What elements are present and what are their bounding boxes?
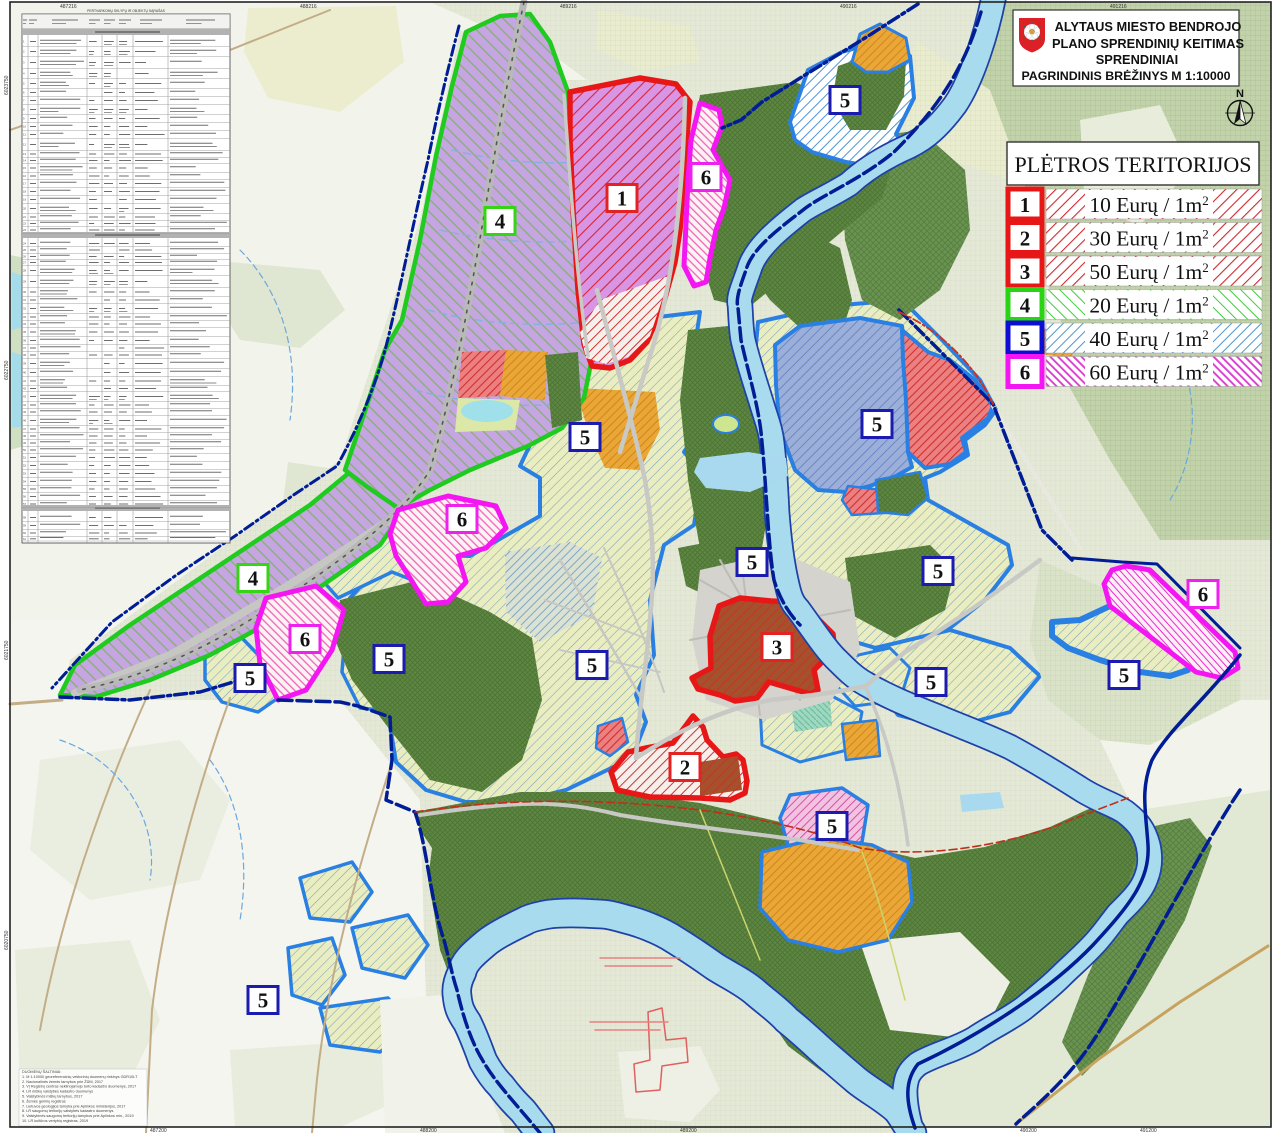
svg-text:46: 46 xyxy=(23,419,27,423)
svg-text:5: 5 xyxy=(1119,664,1130,688)
svg-text:50 Eurų / 1m2: 50 Eurų / 1m2 xyxy=(1089,260,1208,284)
svg-text:38: 38 xyxy=(23,353,27,357)
svg-text:57: 57 xyxy=(23,502,27,506)
svg-text:49: 49 xyxy=(23,441,27,445)
svg-text:5: 5 xyxy=(840,89,851,113)
svg-text:54: 54 xyxy=(23,480,27,484)
svg-text:47: 47 xyxy=(23,427,27,431)
svg-text:20: 20 xyxy=(23,207,27,211)
svg-text:17: 17 xyxy=(23,182,27,186)
svg-text:4: 4 xyxy=(1020,294,1031,318)
svg-text:23: 23 xyxy=(23,228,27,232)
svg-text:4. LR miškų valstybės kadastro: 4. LR miškų valstybės kadastro duomenys xyxy=(22,1090,93,1094)
svg-text:PAGRINDINIS BRĖŽINYS M 1:1000: PAGRINDINIS BRĖŽINYS M 1:10000 xyxy=(1021,68,1230,83)
svg-text:PLANO SPRENDINIŲ KEITIMAS: PLANO SPRENDINIŲ KEITIMAS xyxy=(1052,36,1244,51)
svg-text:DUOMENŲ ŠALTINIAI:: DUOMENŲ ŠALTINIAI: xyxy=(22,1069,61,1074)
svg-text:5: 5 xyxy=(872,413,883,437)
svg-text:56: 56 xyxy=(23,495,27,499)
svg-text:6023750: 6023750 xyxy=(4,75,10,95)
svg-text:15: 15 xyxy=(23,166,27,170)
svg-text:21: 21 xyxy=(23,215,27,219)
svg-text:31: 31 xyxy=(23,298,27,302)
svg-text:5: 5 xyxy=(1020,327,1031,351)
svg-text:5: 5 xyxy=(926,671,937,695)
svg-text:6022750: 6022750 xyxy=(4,360,10,380)
svg-text:28: 28 xyxy=(23,269,27,273)
svg-text:34: 34 xyxy=(23,322,27,326)
svg-text:40: 40 xyxy=(23,371,27,375)
svg-text:45: 45 xyxy=(23,410,27,414)
svg-text:58: 58 xyxy=(23,516,27,520)
svg-text:10. LR kultūros vertybių regis: 10. LR kultūros vertybių registras, 2019 xyxy=(22,1119,88,1123)
svg-text:59: 59 xyxy=(23,524,27,528)
svg-text:5: 5 xyxy=(580,426,591,450)
svg-text:6: 6 xyxy=(300,628,311,652)
svg-text:60: 60 xyxy=(23,531,27,535)
svg-text:9. Valstybinės saugomų teritor: 9. Valstybinės saugomų teritorijų tarnyb… xyxy=(22,1114,134,1118)
svg-text:488200: 488200 xyxy=(420,1128,437,1133)
svg-text:3: 3 xyxy=(772,636,783,660)
svg-text:5: 5 xyxy=(258,989,269,1013)
svg-text:55: 55 xyxy=(23,487,27,491)
svg-text:53: 53 xyxy=(23,472,27,476)
svg-text:6021750: 6021750 xyxy=(4,640,10,660)
svg-text:8. LR saugomų teritorijų valst: 8. LR saugomų teritorijų valstybės kadas… xyxy=(22,1109,113,1113)
svg-text:10 Eurų / 1m2: 10 Eurų / 1m2 xyxy=(1089,193,1208,217)
svg-text:14: 14 xyxy=(23,159,27,163)
svg-text:6020750: 6020750 xyxy=(4,930,10,950)
svg-text:4: 4 xyxy=(495,210,506,234)
svg-text:5: 5 xyxy=(384,648,395,672)
svg-text:11: 11 xyxy=(23,133,26,137)
svg-text:491216: 491216 xyxy=(1110,4,1127,10)
svg-text:18: 18 xyxy=(23,190,27,194)
svg-text:52: 52 xyxy=(23,464,27,468)
svg-text:19: 19 xyxy=(23,198,27,202)
svg-text:6. Žemės gelmių registras: 6. Žemės gelmių registras xyxy=(22,1098,66,1103)
svg-text:51: 51 xyxy=(23,456,27,460)
svg-text:42: 42 xyxy=(23,387,27,391)
svg-text:36: 36 xyxy=(23,339,27,343)
svg-text:41: 41 xyxy=(23,379,27,383)
svg-text:26: 26 xyxy=(23,255,27,259)
svg-text:50: 50 xyxy=(23,448,27,452)
svg-text:60 Eurų / 1m2: 60 Eurų / 1m2 xyxy=(1089,361,1208,385)
svg-text:39: 39 xyxy=(23,362,27,366)
svg-text:PERTVARKOMŲ SKLYPŲ IR OBJEKTŲ: PERTVARKOMŲ SKLYPŲ IR OBJEKTŲ SĄRAŠAS xyxy=(87,8,166,13)
svg-text:22: 22 xyxy=(23,222,27,226)
svg-text:30 Eurų / 1m2: 30 Eurų / 1m2 xyxy=(1089,227,1208,251)
svg-text:6: 6 xyxy=(1020,361,1031,385)
svg-text:2: 2 xyxy=(680,756,691,780)
svg-text:491200: 491200 xyxy=(1140,1128,1157,1133)
svg-text:48: 48 xyxy=(23,434,27,438)
svg-text:10: 10 xyxy=(23,125,27,129)
svg-text:24: 24 xyxy=(23,242,27,246)
svg-text:2: 2 xyxy=(1020,227,1031,251)
svg-text:PLĖTROS TERITORIJOS: PLĖTROS TERITORIJOS xyxy=(1015,152,1252,177)
svg-text:490216: 490216 xyxy=(840,4,857,10)
svg-text:5: 5 xyxy=(933,560,944,584)
svg-text:13: 13 xyxy=(23,152,27,156)
svg-text:5: 5 xyxy=(827,815,838,839)
svg-text:25: 25 xyxy=(23,248,27,252)
svg-text:5: 5 xyxy=(587,654,598,678)
svg-text:487216: 487216 xyxy=(60,4,77,10)
svg-text:61: 61 xyxy=(23,537,27,541)
svg-text:5: 5 xyxy=(747,551,758,575)
svg-text:490200: 490200 xyxy=(1020,1128,1037,1133)
svg-text:37: 37 xyxy=(23,346,27,350)
svg-text:27: 27 xyxy=(23,261,27,265)
svg-text:30: 30 xyxy=(23,290,27,294)
svg-text:6: 6 xyxy=(701,166,712,190)
svg-text:1. M 1:10000 georeferencinių v: 1. M 1:10000 georeferencinių vektorinių … xyxy=(22,1075,138,1079)
svg-text:20 Eurų / 1m2: 20 Eurų / 1m2 xyxy=(1089,294,1208,318)
svg-text:2. Nacionalinės žemės tarnybos: 2. Nacionalinės žemės tarnybos prie ŽŪM,… xyxy=(22,1079,103,1084)
svg-text:487200: 487200 xyxy=(150,1128,167,1133)
svg-text:32: 32 xyxy=(23,307,27,311)
svg-text:SPRENDINIAI: SPRENDINIAI xyxy=(1096,52,1178,67)
svg-text:16: 16 xyxy=(23,174,27,178)
svg-text:29: 29 xyxy=(23,280,27,284)
svg-text:33: 33 xyxy=(23,315,27,319)
svg-text:12: 12 xyxy=(23,143,27,147)
svg-text:4: 4 xyxy=(248,567,259,591)
svg-text:3: 3 xyxy=(1020,260,1031,284)
svg-text:ALYTAUS MIESTO BENDROJO: ALYTAUS MIESTO BENDROJO xyxy=(1055,19,1242,34)
svg-text:5: 5 xyxy=(245,667,256,691)
svg-text:1: 1 xyxy=(1020,193,1031,217)
svg-text:489216: 489216 xyxy=(560,4,577,10)
svg-text:N: N xyxy=(1236,88,1244,100)
svg-text:40 Eurų / 1m2: 40 Eurų / 1m2 xyxy=(1089,327,1208,351)
svg-text:489200: 489200 xyxy=(680,1128,697,1133)
svg-text:7. Lietuvos geologijos tarnyba: 7. Lietuvos geologijos tarnyba prie Apli… xyxy=(22,1104,125,1108)
svg-text:6: 6 xyxy=(457,508,468,532)
svg-text:44: 44 xyxy=(23,403,27,407)
svg-text:35: 35 xyxy=(23,330,27,334)
svg-text:6: 6 xyxy=(1198,583,1209,607)
svg-text:488216: 488216 xyxy=(300,4,317,10)
svg-text:3. VĮ Registrų centras nekilno: 3. VĮ Registrų centras nekilnojamojo tur… xyxy=(22,1085,136,1089)
svg-text:5. Valstybinės miškų tarnybos,: 5. Valstybinės miškų tarnybos, 2017 xyxy=(22,1095,83,1099)
svg-text:1: 1 xyxy=(617,187,628,211)
svg-text:43: 43 xyxy=(23,395,27,399)
